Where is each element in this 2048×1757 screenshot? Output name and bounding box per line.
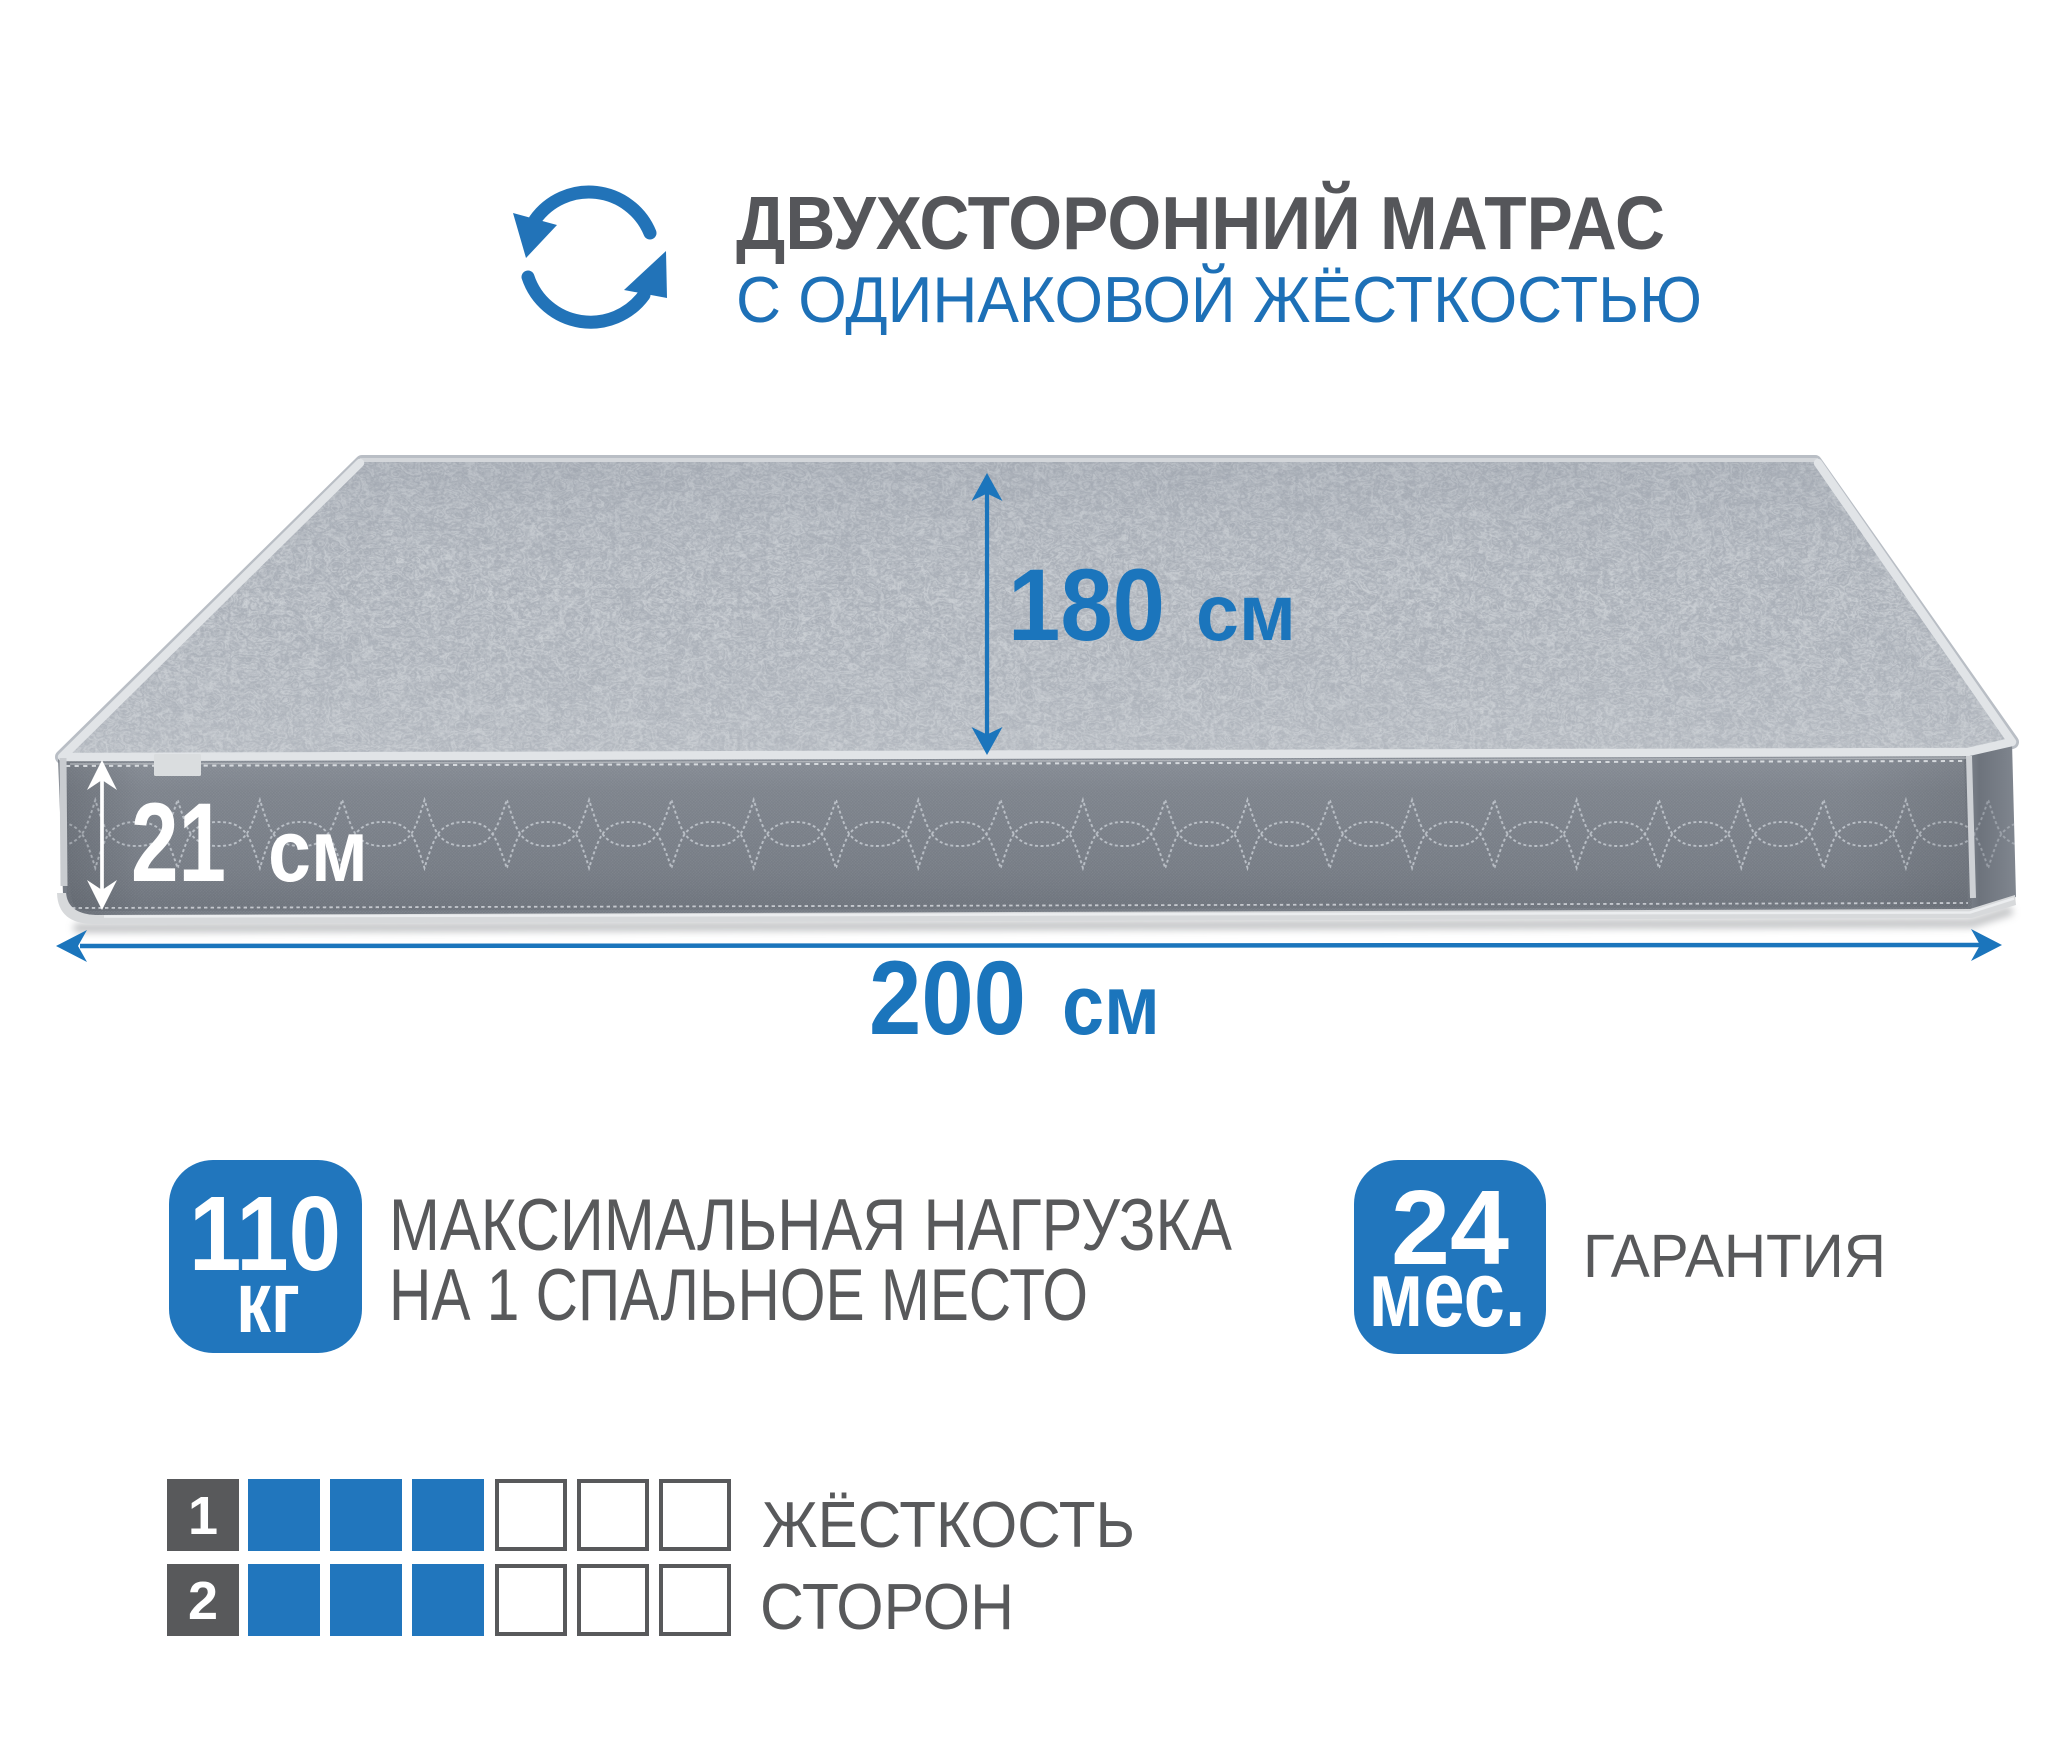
svg-text:см: см	[268, 801, 368, 900]
svg-text:кг: кг	[236, 1254, 300, 1351]
svg-text:21: 21	[131, 780, 226, 905]
svg-text:С ОДИНАКОВОЙ ЖЁСТКОСТЬЮ: С ОДИНАКОВОЙ ЖЁСТКОСТЬЮ	[736, 263, 1702, 336]
svg-text:2: 2	[188, 1571, 218, 1631]
svg-text:МАКСИМАЛЬНАЯ НАГРУЗКА: МАКСИМАЛЬНАЯ НАГРУЗКА	[389, 1185, 1232, 1266]
svg-text:1: 1	[188, 1486, 218, 1546]
svg-text:ГАРАНТИЯ: ГАРАНТИЯ	[1583, 1222, 1886, 1290]
svg-text:ЖЁСТКОСТЬ: ЖЁСТКОСТЬ	[762, 1488, 1135, 1561]
svg-text:НА 1 СПАЛЬНОЕ МЕСТО: НА 1 СПАЛЬНОЕ МЕСТО	[389, 1255, 1088, 1336]
svg-text:180: 180	[1008, 548, 1165, 662]
svg-text:см: см	[1062, 958, 1160, 1052]
svg-text:СТОРОН: СТОРОН	[760, 1570, 1014, 1643]
svg-text:ДВУХСТОРОННИЙ МАТРАС: ДВУХСТОРОННИЙ МАТРАС	[736, 181, 1665, 265]
svg-text:200: 200	[869, 940, 1026, 1057]
svg-text:мес.: мес.	[1369, 1241, 1526, 1346]
svg-text:см: см	[1196, 568, 1296, 657]
